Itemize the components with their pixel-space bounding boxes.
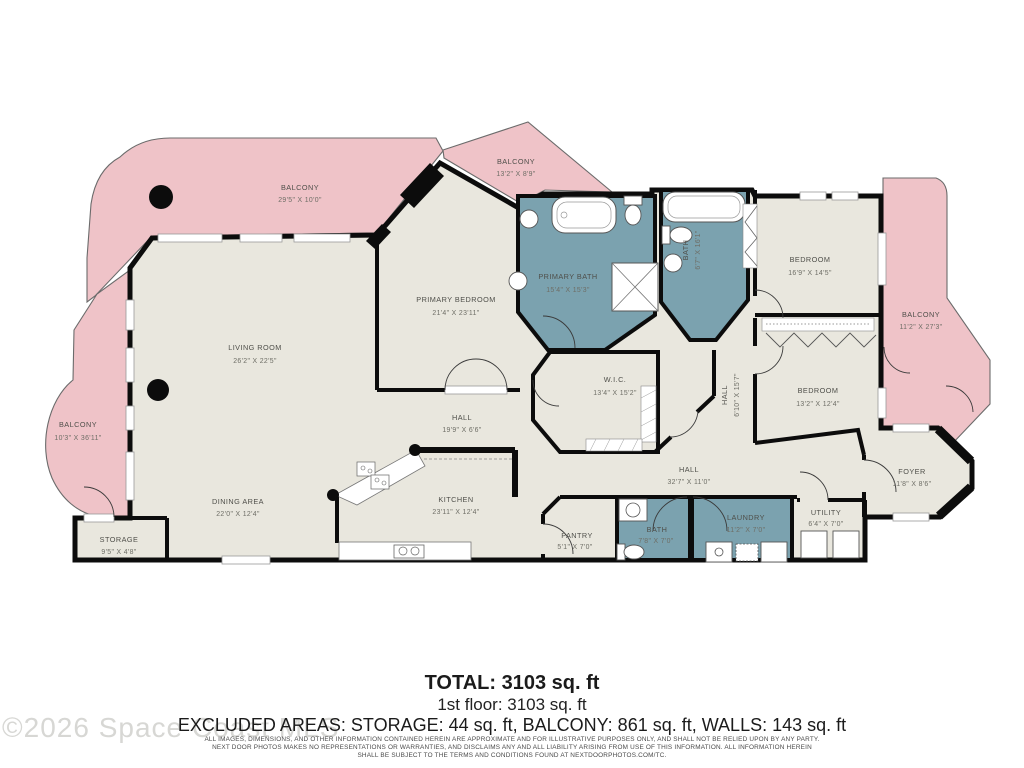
disclaimer-line-2: NEXT DOOR PHOTOS MAKES NO REPRESENTATION… bbox=[0, 744, 1024, 752]
svg-text:BALCONY: BALCONY bbox=[902, 310, 940, 319]
svg-text:STORAGE: STORAGE bbox=[100, 535, 139, 544]
svg-text:PRIMARY BEDROOM: PRIMARY BEDROOM bbox=[416, 295, 495, 304]
column bbox=[327, 489, 339, 501]
svg-text:11'2" X 7'0": 11'2" X 7'0" bbox=[727, 527, 766, 534]
svg-text:9'5" X 4'8": 9'5" X 4'8" bbox=[101, 549, 136, 556]
washer-icon bbox=[736, 544, 758, 561]
closet-shelf bbox=[586, 439, 642, 451]
svg-text:11'8" X 8'6": 11'8" X 8'6" bbox=[893, 481, 932, 488]
svg-text:DINING AREA: DINING AREA bbox=[212, 497, 264, 506]
svg-text:11'2" X 27'3": 11'2" X 27'3" bbox=[900, 324, 943, 331]
svg-text:HALL: HALL bbox=[452, 413, 472, 422]
cooktop-icon bbox=[357, 462, 375, 476]
sink-icon bbox=[520, 210, 538, 228]
toilet-icon bbox=[662, 226, 670, 244]
svg-text:PRIMARY BATH: PRIMARY BATH bbox=[538, 272, 597, 281]
sink-icon bbox=[664, 254, 682, 272]
svg-text:29'5" X 10'0": 29'5" X 10'0" bbox=[278, 197, 322, 204]
svg-text:6'4" X 7'0": 6'4" X 7'0" bbox=[808, 521, 843, 528]
floor-plan-svg: BALCONY 29'5" X 10'0" BALCONY 13'2" X 8'… bbox=[0, 0, 1024, 768]
svg-text:W.I.C.: W.I.C. bbox=[604, 375, 627, 384]
kitchen-sink-icon bbox=[394, 545, 424, 558]
dryer-icon bbox=[761, 542, 787, 562]
svg-text:21'4" X 23'11": 21'4" X 23'11" bbox=[432, 310, 479, 317]
svg-text:BATH: BATH bbox=[647, 525, 668, 534]
svg-text:BALCONY: BALCONY bbox=[59, 420, 97, 429]
tub-icon bbox=[552, 197, 616, 233]
floor-plan-page: BALCONY 29'5" X 10'0" BALCONY 13'2" X 8'… bbox=[0, 0, 1024, 768]
svg-text:15'4" X 15'3": 15'4" X 15'3" bbox=[546, 287, 590, 294]
svg-text:KITCHEN: KITCHEN bbox=[438, 495, 473, 504]
footer: TOTAL: 3103 sq. ft 1st floor: 3103 sq. f… bbox=[0, 672, 1024, 760]
svg-text:PANTRY: PANTRY bbox=[561, 531, 593, 540]
first-floor-area-text: 1st floor: 3103 sq. ft bbox=[0, 695, 1024, 715]
total-area-text: TOTAL: 3103 sq. ft bbox=[0, 672, 1024, 695]
svg-text:23'11" X 12'4": 23'11" X 12'4" bbox=[432, 509, 479, 516]
svg-text:22'0" X 12'4": 22'0" X 12'4" bbox=[216, 511, 260, 518]
toilet-icon bbox=[624, 196, 642, 205]
svg-text:BALCONY: BALCONY bbox=[497, 157, 535, 166]
column bbox=[149, 185, 173, 209]
svg-text:BATH: BATH bbox=[681, 240, 690, 261]
disclaimer-line-1: ALL IMAGES, DIMENSIONS, AND OTHER INFORM… bbox=[0, 736, 1024, 744]
svg-text:13'4" X 15'2": 13'4" X 15'2" bbox=[593, 390, 637, 397]
closet bbox=[762, 318, 874, 331]
svg-text:13'2" X 8'9": 13'2" X 8'9" bbox=[496, 171, 536, 178]
svg-text:HALL: HALL bbox=[679, 465, 699, 474]
svg-text:BEDROOM: BEDROOM bbox=[798, 386, 839, 395]
svg-text:HALL: HALL bbox=[720, 385, 729, 405]
laundry-sink-icon bbox=[706, 542, 732, 562]
svg-text:BEDROOM: BEDROOM bbox=[790, 255, 831, 264]
svg-text:FOYER: FOYER bbox=[898, 467, 925, 476]
utility-unit-icon bbox=[801, 531, 827, 558]
svg-text:7'8" X 7'0": 7'8" X 7'0" bbox=[638, 538, 673, 545]
sink-icon bbox=[509, 272, 527, 290]
svg-text:UTILITY: UTILITY bbox=[811, 508, 841, 517]
svg-text:26'2" X 22'5": 26'2" X 22'5" bbox=[233, 358, 277, 365]
svg-text:5'1" X 7'0": 5'1" X 7'0" bbox=[557, 544, 592, 551]
svg-text:13'2" X 12'4": 13'2" X 12'4" bbox=[796, 401, 840, 408]
svg-text:LIVING ROOM: LIVING ROOM bbox=[228, 343, 282, 352]
svg-text:BALCONY: BALCONY bbox=[281, 183, 319, 192]
balcony-left-region bbox=[46, 270, 130, 517]
svg-text:6'7" X 16'1": 6'7" X 16'1" bbox=[695, 230, 702, 270]
column bbox=[147, 379, 169, 401]
svg-text:19'9" X 6'6": 19'9" X 6'6" bbox=[442, 427, 482, 434]
svg-text:6'10" X 15'7": 6'10" X 15'7" bbox=[734, 373, 741, 417]
closet-shelf bbox=[641, 386, 656, 442]
sink-icon bbox=[619, 499, 647, 521]
svg-text:32'7" X 11'0": 32'7" X 11'0" bbox=[668, 479, 711, 486]
svg-text:16'9" X 14'5": 16'9" X 14'5" bbox=[788, 270, 832, 277]
excluded-areas-text: EXCLUDED AREAS: STORAGE: 44 sq. ft, BALC… bbox=[0, 715, 1024, 736]
utility-unit-icon bbox=[833, 531, 859, 558]
svg-text:LAUNDRY: LAUNDRY bbox=[727, 513, 765, 522]
column bbox=[409, 444, 421, 456]
svg-text:10'3" X 36'11": 10'3" X 36'11" bbox=[54, 435, 101, 442]
disclaimer-line-3: SHALL BE SUBJECT TO THE TERMS AND CONDIT… bbox=[0, 752, 1024, 760]
